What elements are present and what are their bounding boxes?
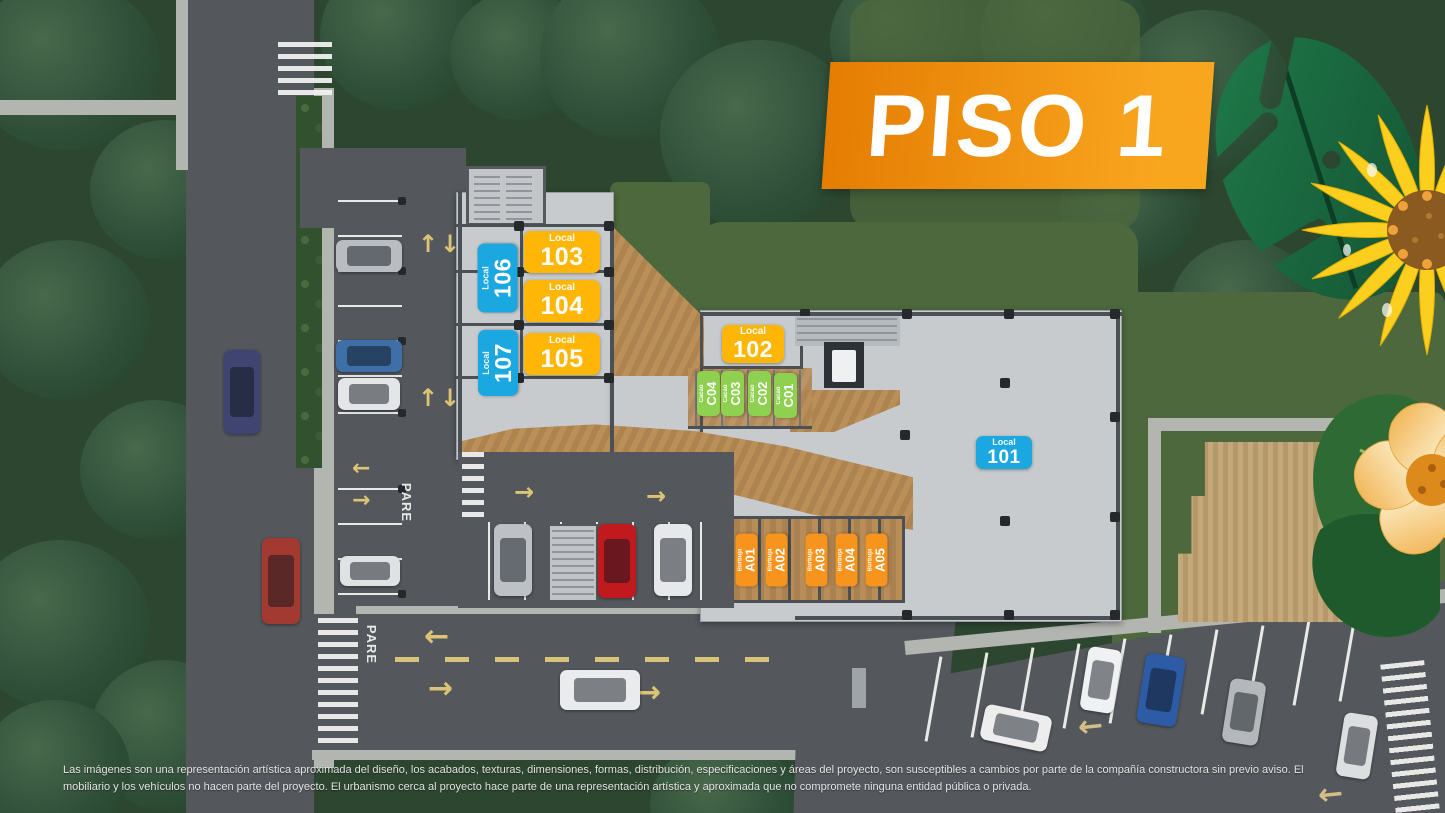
unit-type-label: Local: [740, 327, 766, 337]
direction-arrow-right: →: [646, 484, 666, 508]
wall: [610, 224, 614, 460]
sidewalk: [312, 750, 812, 760]
column: [604, 373, 614, 383]
unit-type-label: Local: [992, 438, 1016, 447]
unit-code: C03: [729, 382, 742, 406]
direction-arrow-right: →: [428, 674, 453, 704]
unit-code: 103: [540, 245, 583, 270]
stall-line: [338, 375, 402, 377]
car: [338, 378, 400, 410]
direction-arrow-up: ↑: [418, 232, 438, 256]
unit-badge-local-107[interactable]: Local 107: [478, 330, 518, 396]
stop-marking: PARE: [364, 625, 379, 664]
wall: [758, 516, 761, 603]
column: [1110, 309, 1120, 319]
unit-type-label: Cacao: [699, 385, 705, 403]
stair-treads: [474, 176, 500, 220]
column: [398, 197, 406, 205]
unit-type-label: Cacao: [776, 387, 782, 405]
column: [1110, 412, 1120, 422]
unit-badge-burbuja-a02[interactable]: Burbuja A02: [766, 534, 788, 587]
unit-type-label: Burbuja: [837, 549, 843, 572]
direction-arrow-right: →: [352, 490, 370, 512]
crosswalk: [318, 618, 358, 750]
direction-arrow-down: ↓: [440, 386, 460, 410]
sidewalk: [176, 0, 188, 170]
unit-badge-burbuja-a04[interactable]: Burbuja A04: [836, 534, 858, 587]
unit-code: A01: [743, 548, 756, 572]
wall: [1116, 312, 1120, 620]
column: [1000, 378, 1010, 388]
crosswalk: [462, 452, 484, 522]
column: [604, 267, 614, 277]
wall: [456, 323, 614, 326]
unit-badge-local-102[interactable]: Local 102: [722, 325, 784, 363]
column: [1004, 309, 1014, 319]
direction-arrow-left: ←: [1077, 711, 1105, 743]
unit-type-label: Burbuja: [807, 549, 813, 572]
unit-type-label: Cacao: [723, 385, 729, 403]
column: [398, 409, 406, 417]
unit-type-label: Local: [549, 336, 575, 346]
floor-plan-canvas: ← ←: [0, 0, 1445, 813]
unit-badge-burbuja-a05[interactable]: Burbuja A05: [866, 534, 888, 587]
direction-arrow-left: ←: [424, 622, 449, 652]
column: [398, 590, 406, 598]
unit-type-label: Burbuja: [867, 549, 873, 572]
column: [1000, 516, 1010, 526]
stall-line: [338, 235, 402, 237]
car: [340, 556, 400, 586]
tree-canopy: [0, 240, 150, 400]
stall-line: [338, 200, 402, 202]
unit-code: 106: [491, 258, 514, 298]
stair-treads: [506, 176, 532, 220]
wall: [520, 224, 523, 379]
stop-marking: PARE: [399, 483, 414, 522]
unit-type-label: Local: [549, 283, 575, 293]
stair-treads: [797, 318, 897, 344]
unit-code: C04: [705, 382, 718, 406]
unit-badge-local-105[interactable]: Local 105: [524, 333, 600, 375]
unit-code: C01: [782, 384, 795, 408]
unit-code: A05: [873, 548, 886, 572]
direction-arrow-down: ↓: [440, 232, 460, 256]
column: [604, 320, 614, 330]
column: [604, 221, 614, 231]
column: [902, 309, 912, 319]
grass-patch: [698, 222, 1138, 317]
car: [560, 670, 640, 710]
column: [1004, 610, 1014, 620]
wall: [700, 366, 802, 369]
unit-code: 101: [987, 448, 1020, 467]
legal-disclaimer: Las imágenes son una representación artí…: [63, 762, 1346, 795]
crosswalk: [278, 42, 332, 96]
wall: [799, 370, 801, 426]
car: [494, 524, 532, 596]
unit-badge-cacao-c04[interactable]: Cacao C04: [697, 371, 720, 416]
unit-badge-cacao-c01[interactable]: Cacao C01: [774, 373, 797, 418]
floor-title: PISO 1: [864, 75, 1173, 177]
unit-type-label: Burbuja: [767, 549, 773, 572]
stair-treads: [552, 530, 594, 596]
unit-badge-cacao-c02[interactable]: Cacao C02: [748, 371, 771, 416]
unit-code: A02: [773, 548, 786, 572]
stall-line: [338, 412, 402, 414]
sidewalk: [0, 100, 186, 115]
car: [336, 340, 402, 372]
column: [1110, 512, 1120, 522]
unit-code: A03: [813, 548, 826, 572]
unit-badge-cacao-c03[interactable]: Cacao C03: [721, 371, 744, 416]
unit-type-label: Burbuja: [737, 549, 743, 572]
unit-type-label: Cacao: [750, 385, 756, 403]
unit-type-label: Local: [481, 266, 490, 290]
unit-badge-local-104[interactable]: Local 104: [524, 280, 600, 322]
column: [900, 430, 910, 440]
unit-code: 104: [540, 294, 583, 319]
car: [598, 524, 636, 598]
unit-code: 105: [540, 347, 583, 372]
direction-arrow-right: →: [514, 480, 534, 504]
unit-badge-local-103[interactable]: Local 103: [524, 231, 600, 273]
walkway: [1148, 418, 1161, 633]
direction-arrow-up: ↑: [418, 386, 438, 410]
cream-flower-icon: [1300, 360, 1445, 640]
floor-title-banner: PISO 1: [822, 62, 1215, 189]
direction-arrow-left: ←: [352, 458, 370, 480]
unit-badge-burbuja-a01[interactable]: Burbuja A01: [736, 534, 758, 587]
lane-divider: [395, 657, 795, 662]
stall-line: [700, 522, 702, 600]
unit-type-label: Local: [482, 351, 491, 375]
column: [514, 320, 524, 330]
wall: [795, 616, 1120, 620]
unit-code: A04: [843, 548, 856, 572]
stall-line: [338, 523, 402, 525]
stall-line: [488, 522, 490, 600]
wall: [688, 426, 812, 429]
column: [902, 610, 912, 620]
yellow-flower-icon: [1280, 85, 1445, 385]
unit-badge-local-101[interactable]: Local 101: [976, 436, 1032, 469]
unit-type-label: Local: [549, 234, 575, 244]
unit-code: 102: [733, 338, 773, 361]
unit-badge-local-106[interactable]: Local 106: [478, 244, 518, 313]
wall: [902, 516, 905, 603]
unit-code: 107: [492, 343, 515, 383]
column: [1110, 610, 1120, 620]
elevator-cab: [832, 350, 856, 382]
road-marking: [852, 668, 866, 708]
unit-code: C02: [756, 382, 769, 406]
wall: [456, 224, 614, 227]
stall-line: [338, 305, 402, 307]
stall-line: [338, 593, 402, 595]
column: [514, 221, 524, 231]
wall: [788, 516, 791, 603]
car: [654, 524, 692, 596]
car: [262, 538, 300, 624]
unit-badge-burbuja-a03[interactable]: Burbuja A03: [806, 534, 828, 587]
car: [224, 350, 260, 434]
car: [336, 240, 402, 272]
